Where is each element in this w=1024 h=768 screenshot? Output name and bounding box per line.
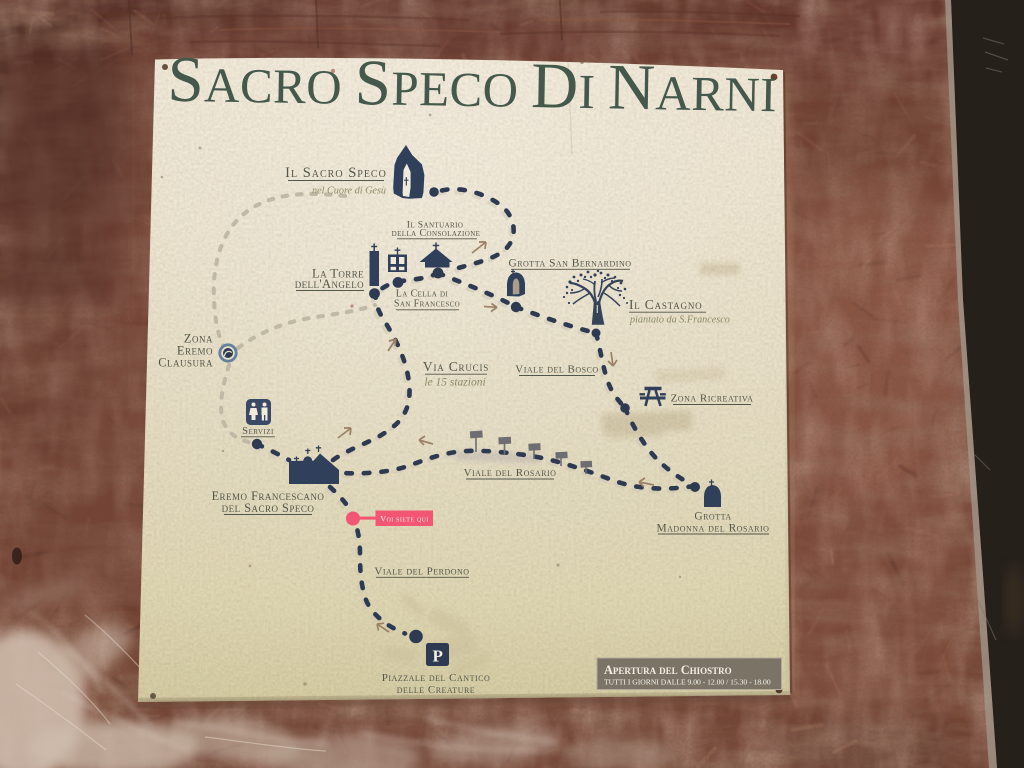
svg-text:Il Sacro Speco: Il Sacro Speco: [285, 165, 387, 181]
svg-text:Via Crucis: Via Crucis: [423, 359, 489, 374]
svg-text:Piazzale del Cantico: Piazzale del Cantico: [382, 672, 491, 684]
svg-text:Madonna del Rosario: Madonna del Rosario: [657, 523, 770, 535]
svg-text:Il Castagno: Il Castagno: [629, 297, 702, 312]
svg-text:Clausura: Clausura: [158, 356, 213, 370]
svg-text:Viale del Bosco: Viale del Bosco: [515, 364, 598, 376]
svg-text:Voi siete qui: Voi siete qui: [380, 515, 429, 524]
svg-text:nel Cuore di Gesù: nel Cuore di Gesù: [312, 186, 386, 197]
svg-text:Viale del Perdono: Viale del Perdono: [374, 566, 469, 578]
svg-text:TUTTI I GIORNI DALLE 9.00 - 12: TUTTI I GIORNI DALLE 9.00 - 12.00 / 15.3…: [604, 678, 771, 687]
svg-text:le 15 stazioni: le 15 stazioni: [424, 377, 485, 389]
svg-text:piantato da S.Francesco: piantato da S.Francesco: [629, 315, 730, 326]
svg-text:della Consolazione: della Consolazione: [392, 228, 481, 239]
svg-text:dell'Angelo: dell'Angelo: [295, 277, 364, 291]
svg-text:Grotta: Grotta: [694, 511, 731, 523]
svg-text:delle Creature: delle Creature: [397, 684, 475, 696]
svg-text:Zona Ricreativa: Zona Ricreativa: [671, 393, 754, 405]
svg-text:Apertura del Chiostro: Apertura del Chiostro: [604, 663, 732, 677]
svg-text:Viale del Rosario: Viale del Rosario: [464, 467, 557, 479]
svg-text:Servizi: Servizi: [242, 426, 274, 437]
svg-text:Grotta San Bernardino: Grotta San Bernardino: [508, 258, 631, 270]
svg-text:del Sacro Speco: del Sacro Speco: [222, 501, 315, 515]
svg-text:P: P: [433, 647, 443, 666]
svg-text:San Francesco: San Francesco: [394, 299, 460, 310]
